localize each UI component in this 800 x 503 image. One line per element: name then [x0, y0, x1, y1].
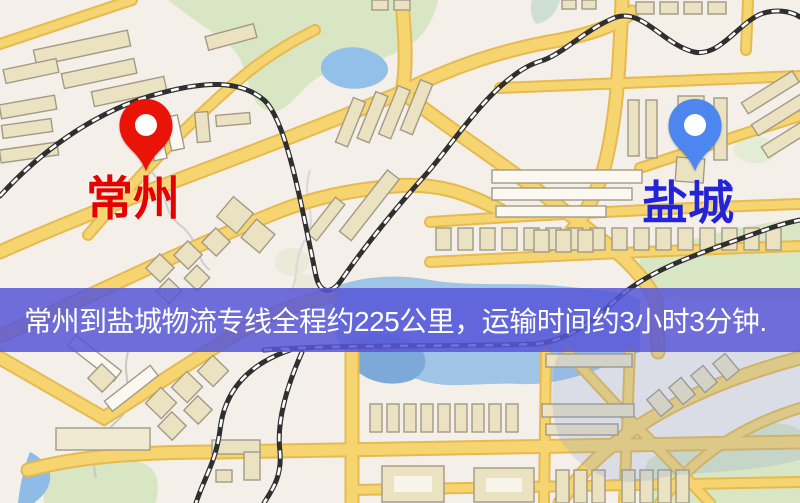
map: 常州 盐城 常州到盐城物流专线全程约225公里，运输时间约3小时3分钟. — [0, 0, 800, 503]
water-tint-overlay — [552, 352, 800, 482]
route-info-banner: 常州到盐城物流专线全程约225公里，运输时间约3小时3分钟. — [0, 288, 800, 352]
blue-pin-icon — [667, 98, 723, 172]
marker-yancheng[interactable] — [667, 98, 723, 172]
marker-changzhou[interactable] — [118, 98, 174, 172]
map-canvas[interactable] — [0, 0, 800, 503]
marker-changzhou-label: 常州 — [86, 176, 180, 223]
marker-yancheng-label: 盐城 — [642, 180, 734, 226]
route-info-text: 常州到盐城物流专线全程约225公里，运输时间约3小时3分钟. — [0, 300, 767, 340]
red-pin-icon — [118, 98, 174, 172]
